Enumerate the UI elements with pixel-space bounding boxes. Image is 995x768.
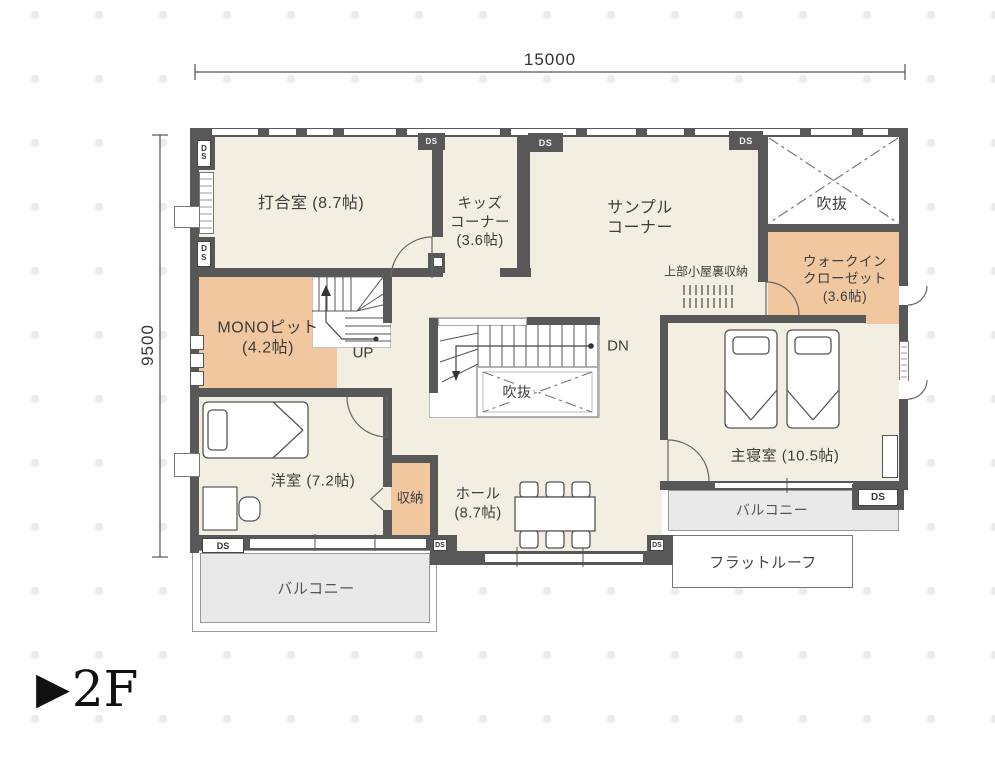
room-label-void-top: 吹抜 — [813, 194, 850, 213]
label-balcony-left: バルコニー — [277, 579, 354, 598]
room-label-closet: 収納 — [397, 489, 424, 506]
western-room-door — [347, 397, 387, 437]
meeting-room-door — [391, 237, 432, 278]
room-label-mono-pit: MONOピット (4.2帖) — [217, 319, 318, 360]
stair-down-label: DN — [607, 336, 629, 355]
room-label-wic: ウォークイン クローゼット (3.6帖) — [803, 253, 887, 305]
master-bedroom-door — [668, 440, 709, 481]
dimension-height-label: 9500 — [137, 324, 159, 366]
room-label-kids: キッズ コーナー (3.6帖) — [450, 195, 510, 251]
desk-and-chair — [203, 487, 260, 530]
stair-up-label: UP — [353, 343, 374, 362]
label-balcony-right: バルコニー — [736, 502, 808, 520]
floor-marker-label: 2F — [72, 664, 139, 714]
floor-marker-triangle-icon: ▶ — [36, 667, 70, 711]
master-bed-2 — [787, 330, 839, 428]
attic-hatch — [684, 285, 732, 308]
wic-door — [766, 282, 799, 315]
western-room-bed — [203, 402, 308, 458]
room-label-void-center: 吹抜 — [501, 384, 534, 402]
floor-marker: ▶ 2F — [36, 664, 138, 714]
master-bed-1 — [725, 330, 777, 428]
center-void-box — [477, 367, 598, 417]
room-label-sample: サンプル コーナー — [607, 199, 673, 240]
room-label-master-bedroom: 主寝室 (10.5帖) — [731, 446, 840, 465]
exterior-door-arc — [908, 286, 927, 399]
room-label-western-room: 洋室 (7.2帖) — [271, 471, 356, 490]
room-label-meeting: 打合室 (8.7帖) — [258, 194, 364, 214]
label-attic-storage: 上部小屋裏収納 — [664, 264, 748, 279]
dining-set — [515, 482, 595, 548]
room-label-hall: ホール (8.7帖) — [454, 485, 501, 522]
closet-bifold-door — [371, 488, 383, 510]
dimension-width-label: 15000 — [524, 49, 576, 71]
up-stair-treads — [312, 277, 391, 341]
plan-linework — [0, 0, 995, 768]
label-flat-roof: フラットルーフ — [709, 553, 817, 572]
floor-plan-canvas: DS DS DS D S D S DS DS DS DS — [0, 0, 995, 768]
